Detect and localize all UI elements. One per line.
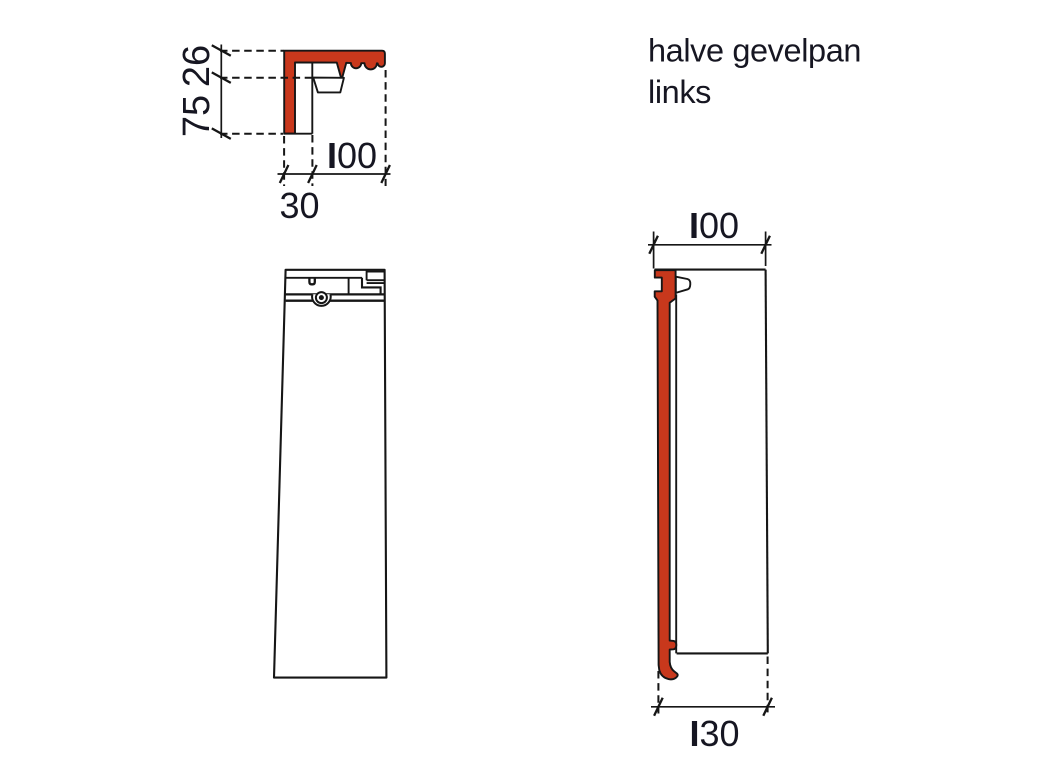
svg-text:30: 30 [279,185,319,226]
svg-text:I00: I00 [327,135,377,176]
svg-text:I00: I00 [689,205,739,246]
svg-text:links: links [648,74,711,110]
svg-text:26: 26 [176,45,218,87]
svg-text:I30: I30 [689,713,739,754]
svg-text:halve gevelpan: halve gevelpan [648,33,861,69]
svg-text:75: 75 [176,95,218,137]
